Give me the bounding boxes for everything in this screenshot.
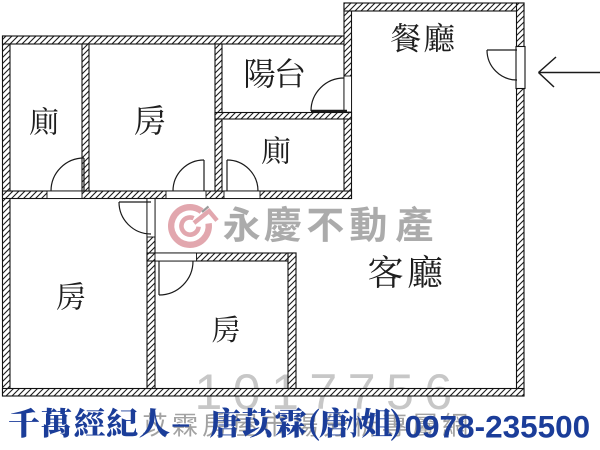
svg-text:0978-235500: 0978-235500 [405, 409, 591, 445]
